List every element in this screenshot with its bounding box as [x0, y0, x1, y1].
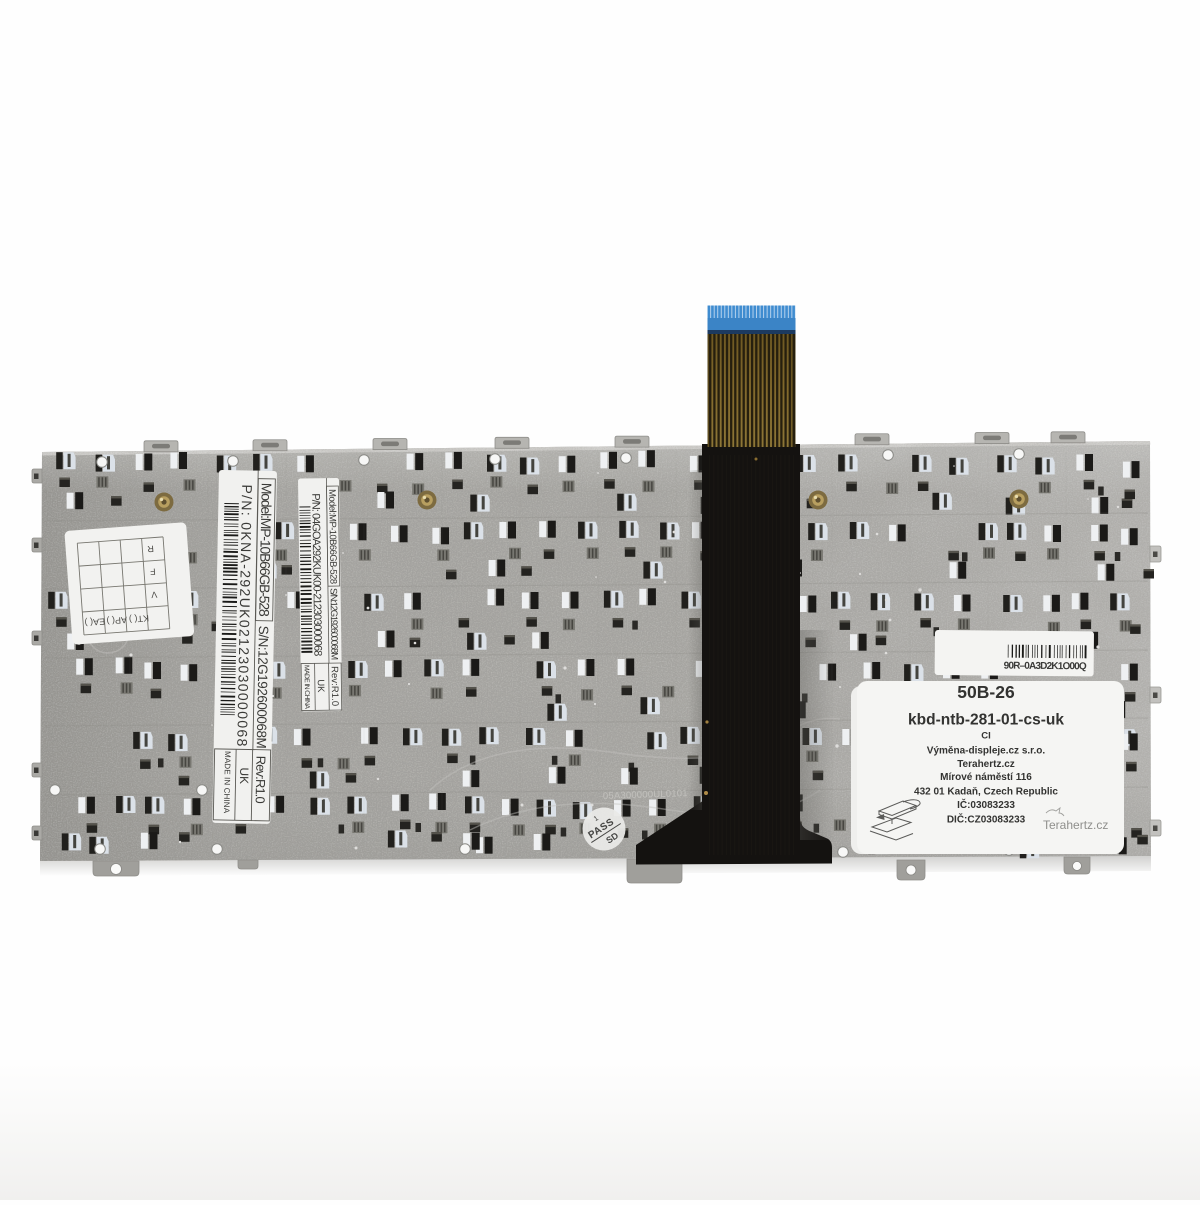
svg-text:50B-26: 50B-26 — [957, 682, 1015, 702]
svg-text:S/N:12G192600068M: S/N:12G192600068M — [328, 588, 340, 660]
svg-text:AP( ): AP( ) — [106, 615, 127, 626]
svg-text:MADE IN CHINA: MADE IN CHINA — [303, 665, 311, 710]
svg-text:UK: UK — [237, 767, 251, 784]
svg-text:Výměna-displeje.cz s.r.o.: Výměna-displeje.cz s.r.o. — [927, 746, 1046, 757]
svg-text:S/N:12G192600068M: S/N:12G192600068M — [254, 626, 271, 749]
svg-text:90R–0A3D2K1O00Q: 90R–0A3D2K1O00Q — [1004, 661, 1087, 673]
svg-text:DIČ:CZ03083233: DIČ:CZ03083233 — [947, 813, 1026, 826]
svg-text:MADE IN CHINA: MADE IN CHINA — [222, 751, 232, 814]
svg-text:Terahertz.cz: Terahertz.cz — [957, 759, 1015, 770]
svg-text:IČ:03083233: IČ:03083233 — [957, 798, 1015, 811]
svg-text:Rev:R1.0: Rev:R1.0 — [253, 756, 269, 804]
svg-text:Terahertz.cz: Terahertz.cz — [1043, 818, 1108, 832]
svg-text:V: V — [151, 589, 158, 599]
svg-text:432 01 Kadaň, Czech Republic: 432 01 Kadaň, Czech Republic — [914, 787, 1058, 798]
svg-text:UK: UK — [315, 679, 326, 693]
svg-text:R: R — [147, 544, 155, 554]
svg-text:EA( ): EA( ) — [84, 616, 105, 627]
svg-text:Mírové náměstí 116: Mírové náměstí 116 — [940, 772, 1032, 783]
svg-text:Rev:R1.0: Rev:R1.0 — [329, 666, 341, 706]
svg-text:KT( ): KT( ) — [129, 613, 150, 624]
svg-text:kbd-ntb-281-01-cs-uk: kbd-ntb-281-01-cs-uk — [908, 712, 1064, 729]
svg-text:CI: CI — [981, 731, 991, 742]
svg-text:Model:MP-10B66GB-528: Model:MP-10B66GB-528 — [256, 483, 275, 617]
